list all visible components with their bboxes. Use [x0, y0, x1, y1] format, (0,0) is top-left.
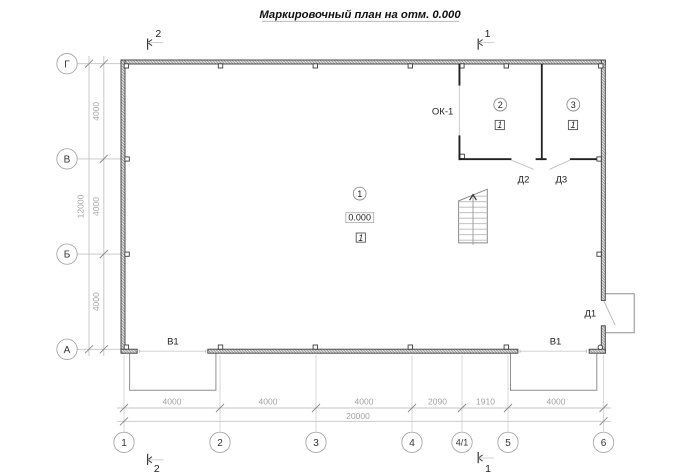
svg-text:4000: 4000	[259, 397, 278, 407]
svg-text:2: 2	[154, 463, 160, 474]
svg-text:5: 5	[505, 438, 511, 449]
svg-text:1910: 1910	[476, 397, 495, 407]
svg-text:0.000: 0.000	[348, 213, 371, 223]
svg-text:Д3: Д3	[555, 175, 567, 186]
svg-text:1: 1	[358, 233, 363, 243]
svg-text:2090: 2090	[428, 397, 447, 407]
svg-text:Г: Г	[64, 59, 70, 70]
svg-text:1: 1	[357, 189, 362, 199]
svg-text:Б: Б	[64, 250, 71, 261]
svg-text:4: 4	[409, 438, 415, 449]
svg-text:1: 1	[485, 28, 491, 40]
svg-text:1: 1	[497, 120, 502, 130]
svg-text:4000: 4000	[547, 397, 566, 407]
svg-text:1: 1	[570, 120, 575, 130]
svg-text:Маркировочный план на отм. 0.0: Маркировочный план на отм. 0.000	[259, 9, 461, 21]
svg-text:2: 2	[217, 438, 223, 449]
svg-text:1: 1	[121, 438, 127, 449]
svg-text:ОК-1: ОК-1	[432, 107, 453, 118]
svg-text:4000: 4000	[163, 397, 182, 407]
svg-text:4000: 4000	[91, 102, 101, 121]
svg-text:3: 3	[571, 100, 576, 110]
svg-text:12000: 12000	[76, 194, 86, 218]
svg-text:2: 2	[498, 100, 503, 110]
svg-text:В: В	[64, 155, 71, 166]
svg-text:6: 6	[601, 438, 607, 449]
svg-text:20000: 20000	[346, 411, 370, 421]
svg-text:Д2: Д2	[518, 175, 530, 186]
svg-text:2: 2	[155, 28, 161, 40]
svg-text:А: А	[64, 345, 71, 356]
svg-text:4/1: 4/1	[456, 438, 469, 448]
svg-text:В1: В1	[167, 337, 179, 348]
svg-text:Д1: Д1	[584, 309, 596, 320]
svg-text:1: 1	[485, 463, 491, 474]
svg-text:4000: 4000	[91, 197, 101, 216]
svg-text:3: 3	[313, 438, 319, 449]
svg-text:4000: 4000	[355, 397, 374, 407]
svg-text:4000: 4000	[91, 292, 101, 311]
svg-text:В1: В1	[550, 337, 562, 348]
